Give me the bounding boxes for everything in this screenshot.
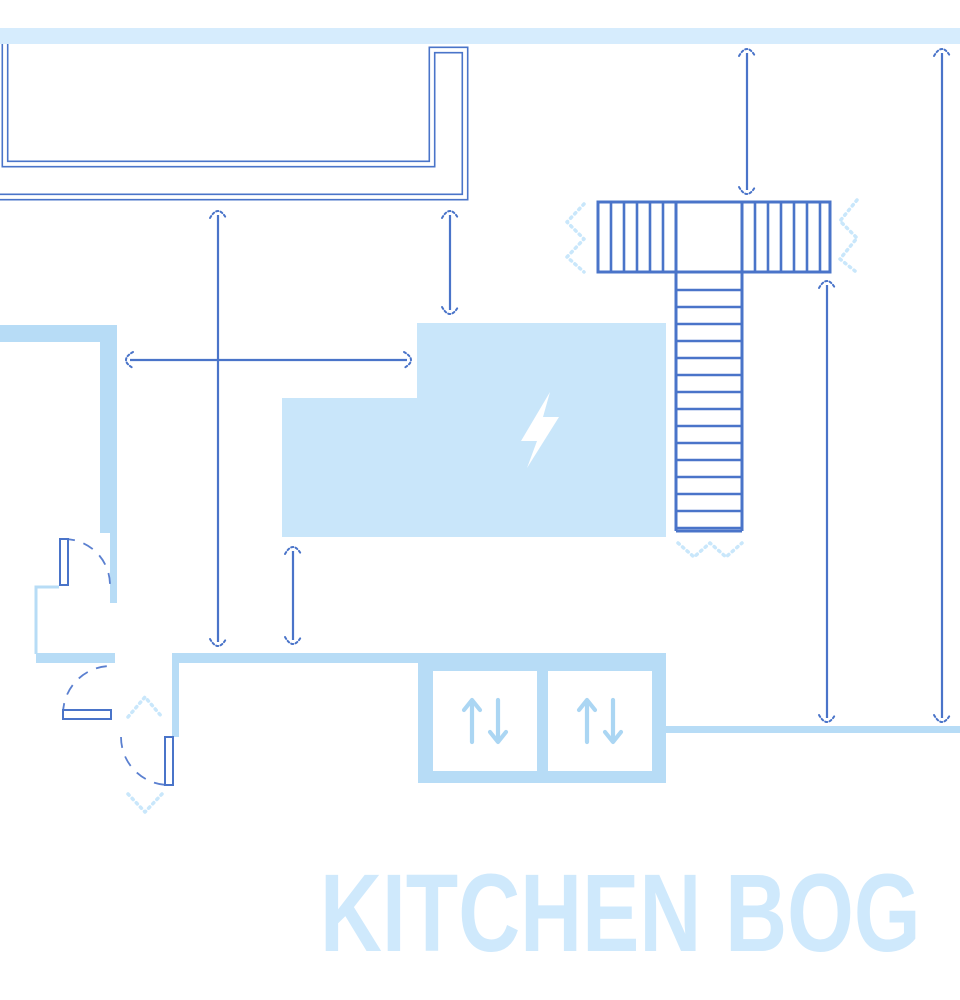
- dim-stairs-top: [739, 49, 755, 194]
- double-wall-inner-gap: [0, 44, 465, 197]
- break-mark-left-icon: [567, 204, 584, 272]
- wall-segment: [36, 653, 115, 663]
- wall-step-outline: [36, 587, 59, 654]
- top-wall-band: [0, 28, 960, 44]
- dim-horizontal: [126, 352, 411, 368]
- door-leaf: [165, 737, 173, 785]
- elevator-block: [418, 653, 666, 783]
- electrical-room-fill: [282, 323, 666, 537]
- door-swing-arc: [64, 539, 110, 585]
- floor-plan-canvas: [0, 0, 960, 1000]
- wall-jamb: [110, 533, 117, 603]
- elevator-cab-2: [548, 671, 652, 771]
- wall-segment: [0, 325, 117, 342]
- dim-room-gap: [285, 547, 301, 644]
- dim-right-inner: [819, 281, 835, 722]
- door-leaf: [63, 710, 111, 719]
- door-leaf: [60, 539, 68, 585]
- break-mark-bottom-icon: [678, 543, 742, 557]
- break-mark-right-icon: [840, 200, 857, 271]
- door-swing-arc: [121, 737, 169, 785]
- dim-left-short: [442, 211, 458, 314]
- wall-segment: [100, 342, 117, 533]
- double-line-wall: [0, 44, 465, 197]
- door-swing-arc: [63, 666, 111, 714]
- double-wall-outer-stroke: [0, 44, 465, 197]
- wall-segment: [172, 653, 418, 663]
- chevron-up-icon: [128, 697, 162, 717]
- chevron-down-icon: [128, 794, 162, 812]
- bottom-right-wall: [666, 726, 960, 733]
- wall-jamb: [172, 663, 179, 737]
- dim-left-tall: [210, 211, 226, 646]
- dim-right-outer: [934, 49, 950, 722]
- floor-title: KITCHEN BOG: [320, 859, 921, 969]
- elevator-cab-1: [433, 671, 537, 771]
